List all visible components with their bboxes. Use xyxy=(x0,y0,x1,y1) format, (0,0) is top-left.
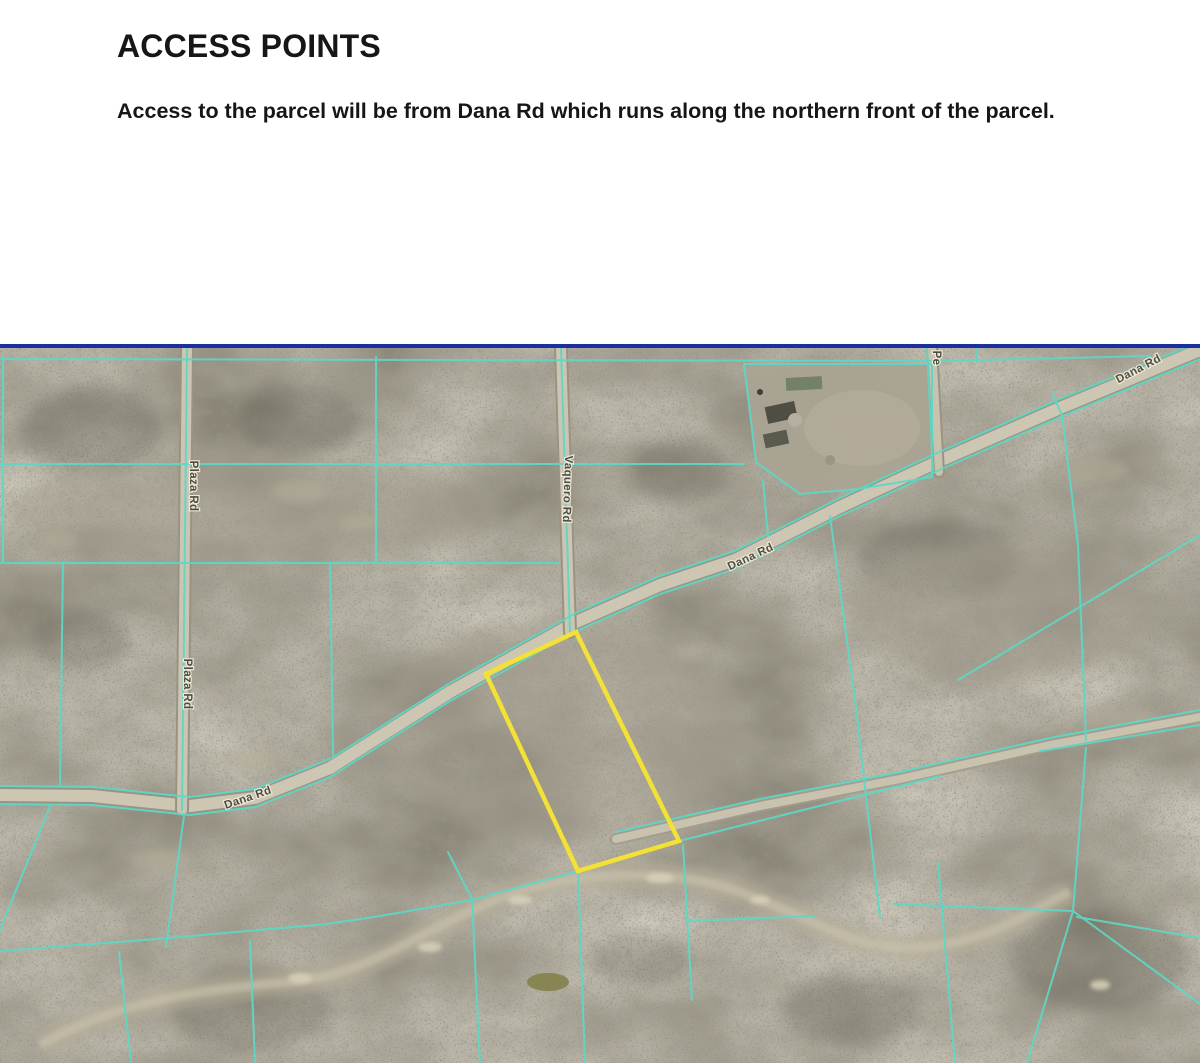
satellite-map: Dana Rd Dana Rd Dana Rd Plaza Rd Plaza R… xyxy=(0,344,1200,1063)
road-label-plaza-lower: Plaza Rd xyxy=(181,659,193,710)
access-description: Access to the parcel will be from Dana R… xyxy=(117,95,1055,127)
building-roof xyxy=(786,376,823,391)
document-page: ACCESS POINTS Access to the parcel will … xyxy=(0,0,1200,1063)
road-label-plaza-upper: Plaza Rd xyxy=(187,461,199,512)
pond xyxy=(527,973,569,991)
section-heading: ACCESS POINTS xyxy=(117,28,381,65)
parcel-map-image: Dana Rd Dana Rd Dana Rd Plaza Rd Plaza R… xyxy=(0,348,1200,1063)
road-label-partial: Pe xyxy=(930,351,942,366)
road-label-vaquero: Vaquero Rd xyxy=(560,455,574,523)
